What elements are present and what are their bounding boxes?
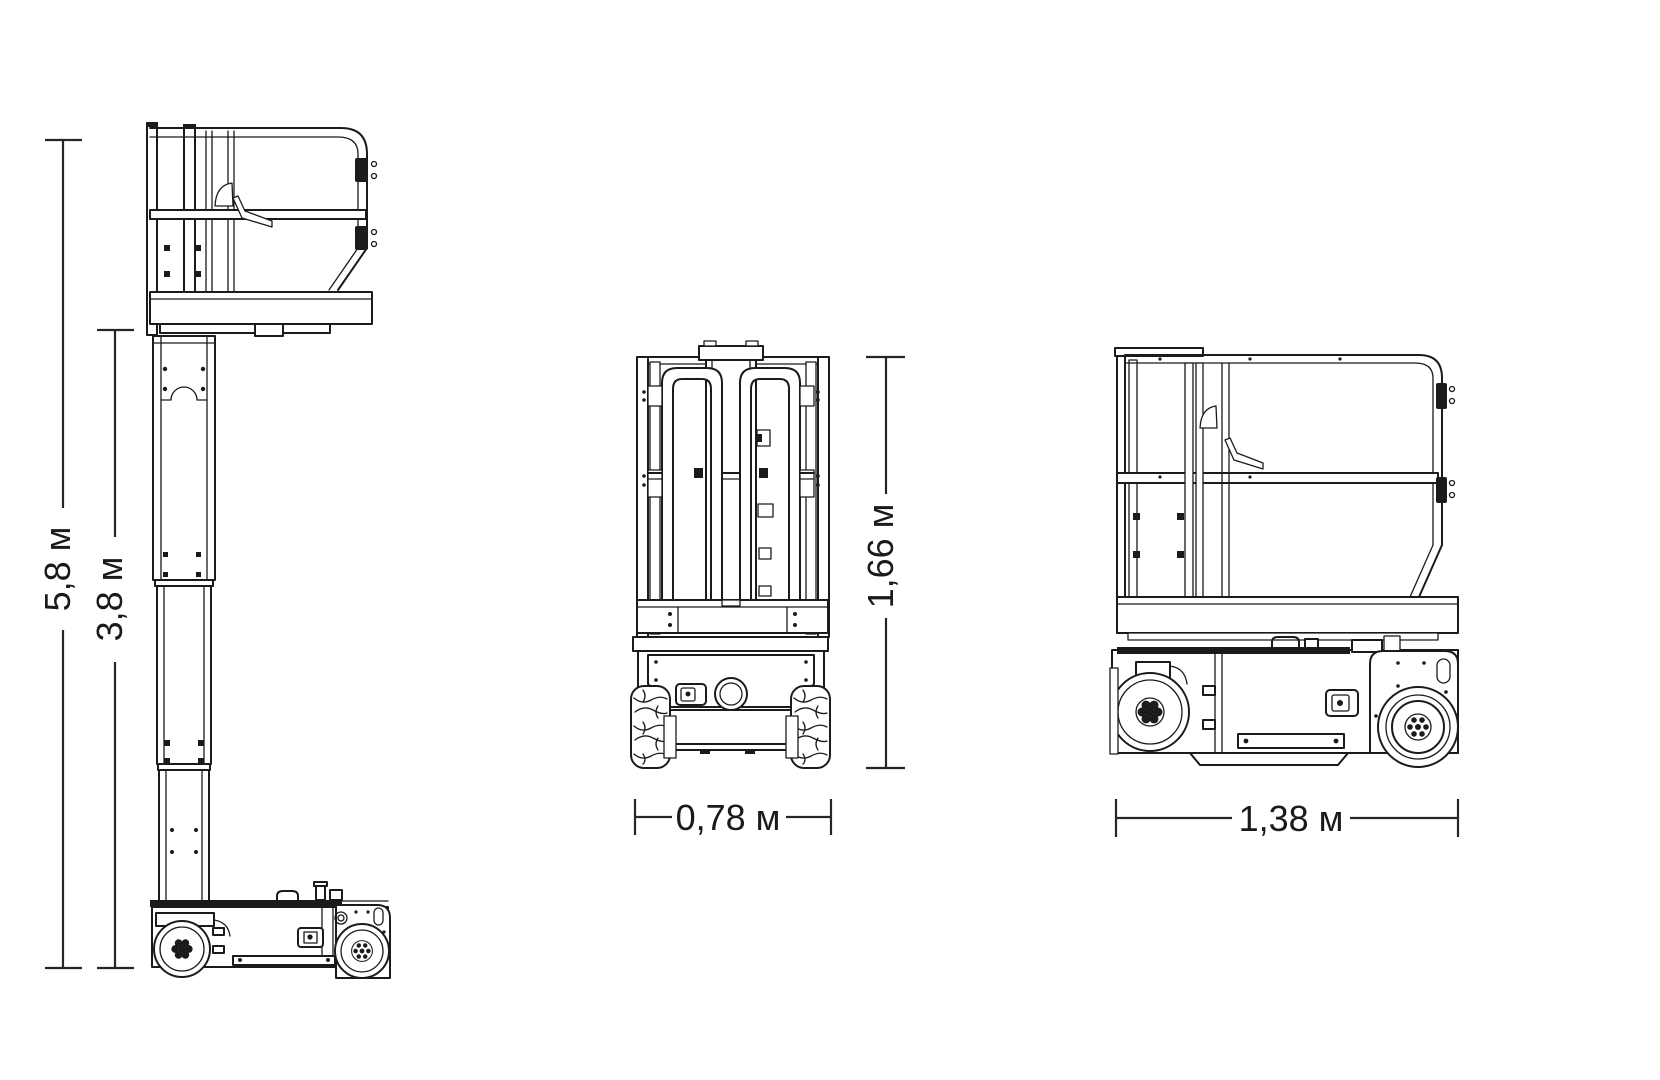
chassis-front [631,637,830,768]
platform-basket [146,122,377,336]
platform-floor [150,292,372,324]
view-side-extended [146,122,390,978]
stowed-height-label: 1,66 м [860,504,901,609]
dimensional-drawing-page: 5,8 м 3,8 м [0,0,1660,1080]
guard-rails [1115,348,1455,597]
platform-height-label: 3,8 м [89,557,130,642]
dimension-overall-length: 1,38 м [1116,798,1458,839]
mast-lift-dimensional-drawing: 5,8 м 3,8 м [0,0,1660,1080]
platform-side [1117,597,1458,640]
guard-rails-folded [637,341,829,637]
view-front [631,341,830,768]
rear-wheel [335,924,389,978]
mast-head [699,346,763,360]
overall-width-label: 0,78 м [676,797,781,838]
dimension-overall-height: 5,8 м [37,140,82,968]
rear-wheel [1378,687,1458,767]
dimension-overall-width: 0,78 м [635,797,831,838]
overall-height-label: 5,8 м [37,527,78,612]
front-wheel [1111,673,1189,751]
telescopic-mast [153,336,215,904]
view-side-stowed [1110,348,1458,767]
overall-length-label: 1,38 м [1239,798,1344,839]
chassis-side [1110,636,1458,767]
dimension-stowed-height: 1,66 м [860,357,905,768]
front-wheel [154,921,210,977]
platform-front [637,600,828,633]
dimension-platform-height: 3,8 м [89,330,134,968]
